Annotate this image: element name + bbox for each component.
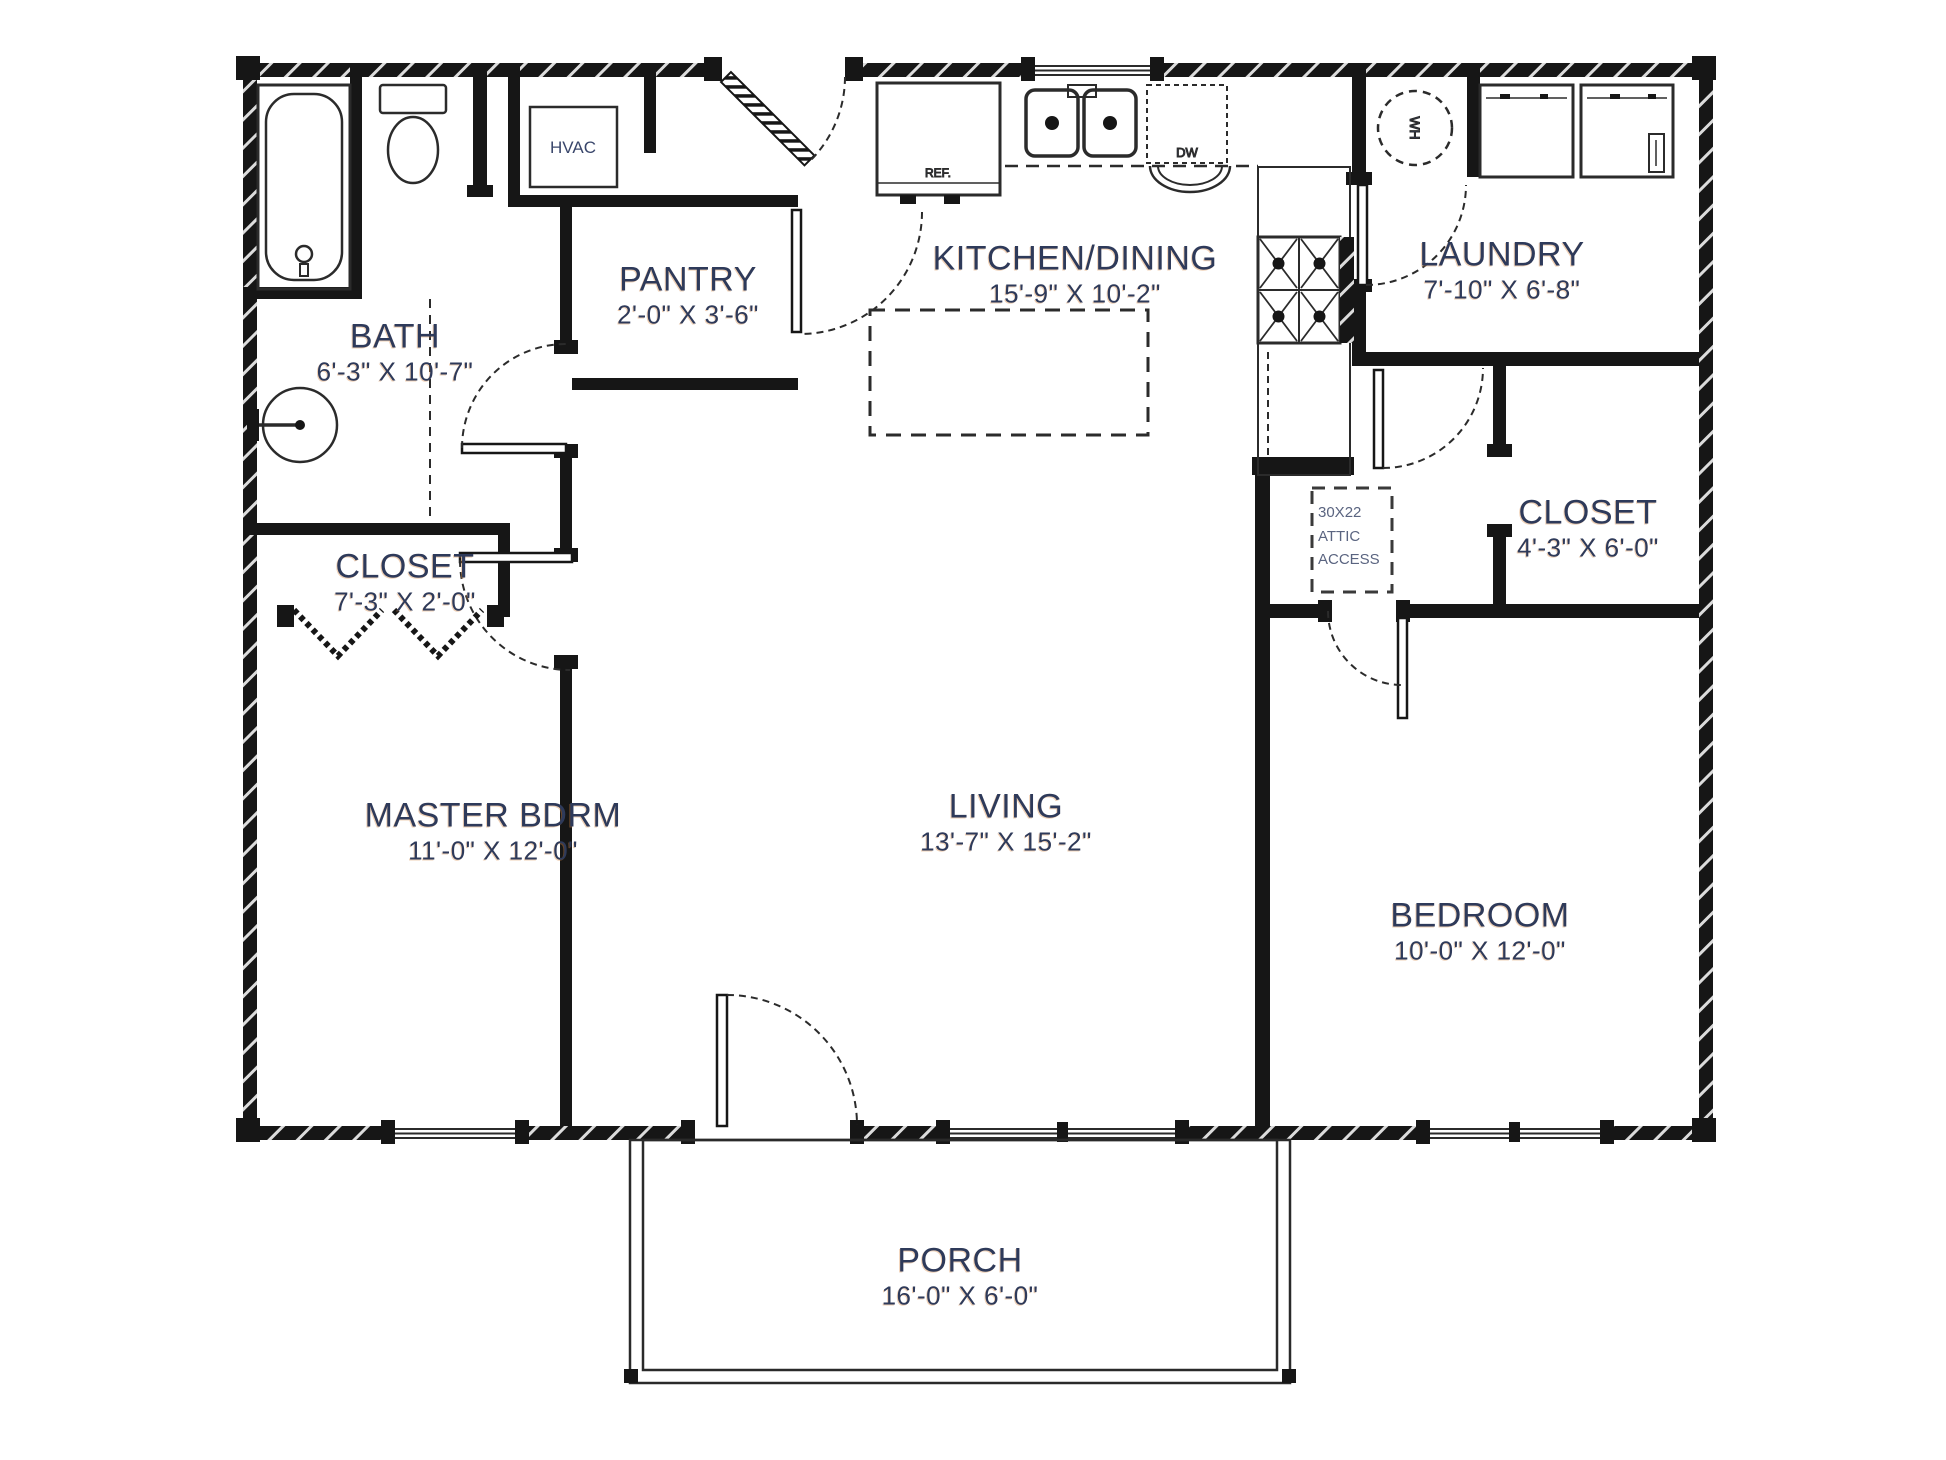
attic-access: 30X22 ATTIC ACCESS <box>1312 488 1392 592</box>
attic-access-label-line3: ACCESS <box>1318 551 1380 568</box>
kitchen-sink <box>1026 85 1136 156</box>
attic-access-label-line1: 30X22 <box>1318 504 1361 521</box>
washer-dryer <box>1480 85 1673 177</box>
refrigerator-label: REF. <box>925 166 951 180</box>
water-heater-label: WH <box>1407 116 1423 139</box>
bathtub <box>258 85 350 289</box>
toilet <box>380 85 446 113</box>
doors <box>294 72 1483 1126</box>
dishwasher: DW <box>1147 85 1230 192</box>
back-door-leaf <box>721 72 814 165</box>
stove <box>1258 237 1354 343</box>
hvac-label: HVAC <box>550 138 596 157</box>
floor-plan-page: HVAC REF. DW <box>0 0 1946 1460</box>
floor-plan-drawing: HVAC REF. DW <box>0 0 1946 1460</box>
porch-outline <box>624 1140 1296 1383</box>
water-heater: WH <box>1378 91 1452 165</box>
bath-fixtures <box>247 85 446 523</box>
attic-access-label-line2: ATTIC <box>1318 528 1360 545</box>
interior-walls <box>243 57 1699 1144</box>
dishwasher-label: DW <box>1176 145 1198 160</box>
laundry-fixtures: WH <box>1378 85 1673 177</box>
hvac-unit: HVAC <box>530 107 617 187</box>
kitchen-island <box>870 310 1148 435</box>
kitchen-fixtures: REF. DW <box>870 83 1354 475</box>
